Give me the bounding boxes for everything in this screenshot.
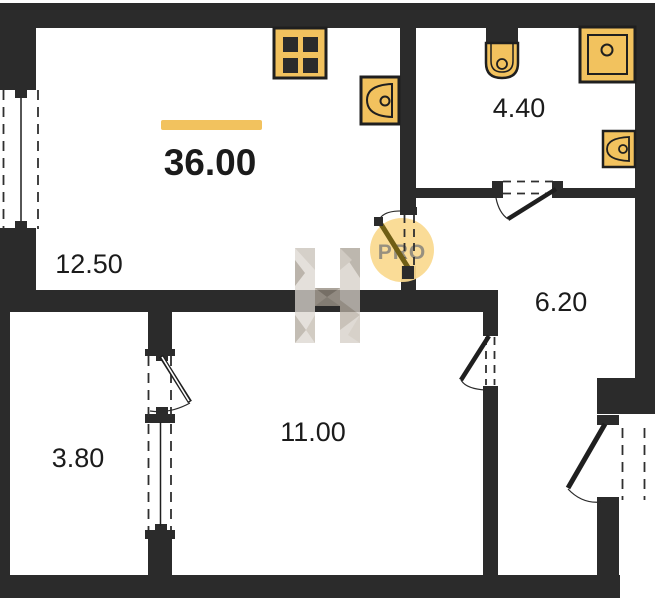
entrance-jamb-top: [597, 415, 619, 425]
partition-bottom-bar: [145, 530, 175, 539]
wall-left-mid: [0, 228, 36, 292]
room-area-room: 11.00: [280, 417, 346, 447]
bath-sink-icon: [603, 131, 635, 167]
window-left-sash-bottom: [15, 221, 27, 231]
wall-balcony-left: [0, 312, 10, 578]
door-bathroom: [496, 182, 556, 220]
wall-horizontal-main: [0, 290, 498, 312]
door-room-hall-leaf: [461, 336, 489, 380]
logo-h-watermark: [295, 248, 360, 343]
door-kitchen-hall-hinge: [402, 266, 414, 279]
wall-kitchen-bath: [400, 3, 416, 207]
toilet-icon: [486, 24, 518, 78]
total-area-accent-bar: [161, 120, 262, 130]
wall-bath-bottom-left: [416, 188, 503, 198]
partition-stub-bottom: [148, 538, 172, 578]
door-room-hall-arc: [461, 380, 486, 390]
wall-top: [0, 3, 655, 28]
door-kitchen-hall-tip: [374, 217, 383, 226]
balcony-door-leaf-inner: [162, 357, 189, 401]
wall-room-hall-upper: [483, 290, 498, 336]
bath-door-jamb-left: [492, 181, 503, 198]
partition-stub-top: [148, 290, 172, 349]
floorplan-svg: PRO: [0, 0, 655, 600]
total-area-label: 36.00: [164, 142, 257, 183]
window-left-sash-top: [15, 89, 27, 98]
door-entrance-arc: [568, 489, 601, 502]
wall-left-upper-block: [0, 3, 36, 90]
window-left: [4, 89, 39, 231]
wall-right-upper: [635, 3, 655, 395]
wall-right-step-block: [597, 378, 655, 414]
door-entrance: [568, 424, 645, 502]
wall-room-hall-lower: [483, 386, 498, 576]
room-area-hallway: 6.20: [535, 287, 588, 317]
wall-bath-bottom-right: [553, 188, 637, 198]
wall-right-lower: [597, 497, 619, 598]
shower-icon: [580, 27, 635, 82]
floorplan: PRO: [0, 0, 655, 600]
door-entrance-leaf: [568, 424, 605, 488]
door-bathroom-arc: [496, 198, 508, 219]
room-area-balcony: 3.80: [52, 443, 105, 473]
balcony-partition: [149, 356, 191, 530]
room-area-bathroom: 4.40: [493, 93, 546, 123]
labels: 36.00 12.50 4.40 6.20 11.00 3.80: [52, 93, 588, 473]
kitchen-sink-icon: [361, 77, 399, 124]
wall-bottom: [0, 575, 620, 598]
room-area-living-kitchen: 12.50: [55, 249, 123, 279]
stove-icon: [274, 28, 326, 78]
door-room-hall: [461, 336, 495, 390]
